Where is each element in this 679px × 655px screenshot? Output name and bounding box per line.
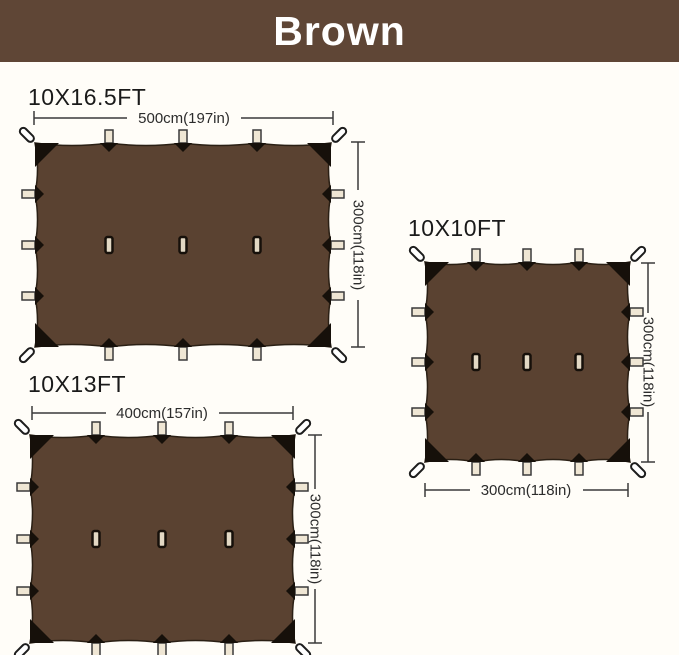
color-banner: Brown bbox=[0, 0, 679, 62]
width-dimension-label: 500cm(197in) bbox=[138, 110, 230, 127]
width-dimension: 500cm(197in) bbox=[34, 110, 333, 127]
center-slot bbox=[180, 237, 187, 253]
height-dimension-label: 300cm(118in) bbox=[307, 494, 324, 585]
center-slot bbox=[524, 354, 531, 370]
product-image: Brown 10X16.5FT 10X10FT 10X13FT 500cm(19… bbox=[0, 0, 679, 655]
center-slot bbox=[576, 354, 583, 370]
height-dimension-label: 300cm(118in) bbox=[350, 200, 367, 291]
width-dimension-label: 400cm(157in) bbox=[116, 405, 208, 422]
tarp-diagram-10x13: 400cm(157in) 300cm(118in) bbox=[0, 390, 345, 655]
height-dimension: 300cm(118in) bbox=[307, 435, 324, 643]
tarp-diagram-10x10: 300cm(118in) 300cm(118in) bbox=[395, 240, 679, 510]
center-slot bbox=[473, 354, 480, 370]
center-slot bbox=[226, 531, 233, 547]
center-slot bbox=[254, 237, 261, 253]
tarp-diagram-10x16-5: 500cm(197in) 300cm(118in) bbox=[0, 95, 395, 385]
center-slot bbox=[93, 531, 100, 547]
width-dimension: 300cm(118in) bbox=[425, 482, 628, 499]
color-name: Brown bbox=[273, 8, 406, 55]
tarp-size-title-10x10: 10X10FT bbox=[408, 215, 506, 242]
height-dimension: 300cm(118in) bbox=[350, 142, 367, 347]
width-dimension: 400cm(157in) bbox=[32, 405, 293, 422]
center-slot bbox=[106, 237, 113, 253]
center-slot bbox=[159, 531, 166, 547]
width-dimension-label: 300cm(118in) bbox=[481, 482, 572, 499]
